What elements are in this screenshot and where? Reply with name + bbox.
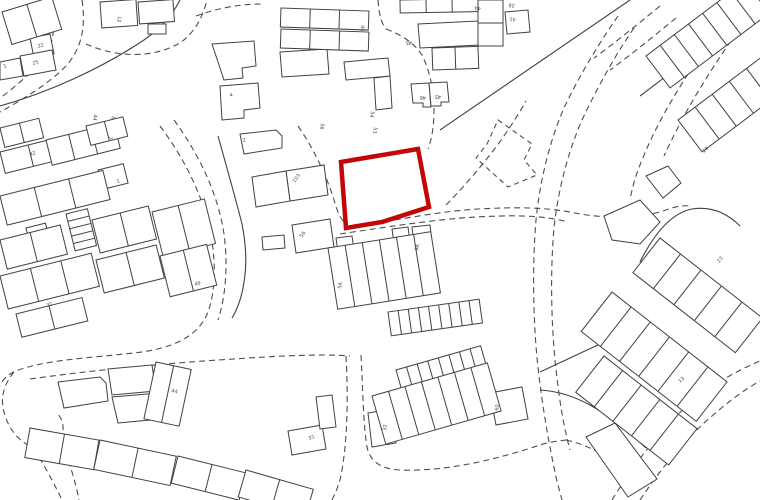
terrace-row <box>280 8 369 30</box>
building-outline <box>316 395 336 429</box>
building-outline <box>262 235 285 250</box>
map-label: 54 <box>368 111 375 118</box>
site-location-plan: 2225112448742149314210356565453454428414… <box>0 0 760 500</box>
map-label: 41 <box>509 15 516 22</box>
map-label: 45 <box>359 25 365 32</box>
terrace-row <box>94 440 177 486</box>
map-svg: 2225112448742149314210356565453454428414… <box>0 0 760 500</box>
terrace-row <box>388 299 482 336</box>
terrace-row <box>0 170 110 225</box>
map-label: 28 <box>508 1 515 8</box>
road-dashed <box>378 0 386 29</box>
terrace-row <box>2 0 62 45</box>
terrace-row <box>432 46 479 70</box>
terrace-row <box>171 456 246 500</box>
map-label: 46 <box>420 94 426 100</box>
terrace-row <box>138 0 174 24</box>
building-outline <box>418 21 480 48</box>
building-outline <box>148 24 166 34</box>
map-label: 56 <box>318 123 325 130</box>
road-dashed <box>594 6 660 58</box>
map-label: 12 <box>115 16 122 23</box>
building-outline <box>646 166 681 198</box>
map-label: 23 <box>716 256 725 265</box>
map-label: 32 <box>382 424 389 431</box>
building-outline <box>604 200 660 244</box>
map-label: 44 <box>91 114 98 121</box>
map-label: 45 <box>406 39 412 45</box>
road-dashed <box>332 356 347 500</box>
map-label: 60 <box>494 404 501 411</box>
terrace-row <box>86 117 128 146</box>
building-outline <box>374 76 392 110</box>
terrace-row <box>96 245 164 293</box>
building-outline <box>240 130 282 154</box>
building-outline <box>212 41 256 80</box>
building-outline <box>108 365 156 395</box>
building-outline <box>286 165 328 201</box>
terrace-row <box>25 428 99 470</box>
building-outline <box>58 377 108 408</box>
terrace-row <box>100 0 138 28</box>
map-label: 8 <box>109 116 115 120</box>
map-label: 44 <box>474 4 481 11</box>
building-outline <box>288 425 326 455</box>
road-solid <box>218 136 246 318</box>
building-outline <box>505 10 530 34</box>
building-outline <box>252 171 290 207</box>
terrace-row <box>92 206 157 253</box>
map-label: 45 <box>435 93 441 99</box>
road-dashed <box>446 101 526 205</box>
terrace-row <box>280 29 369 51</box>
building-outline <box>280 49 329 77</box>
terrace-row <box>66 209 97 251</box>
terrace-row <box>238 470 313 500</box>
building-outline <box>220 83 260 120</box>
terrace-row <box>400 0 478 13</box>
parcel-dashed <box>476 120 537 187</box>
map-label: 53 <box>371 127 378 134</box>
